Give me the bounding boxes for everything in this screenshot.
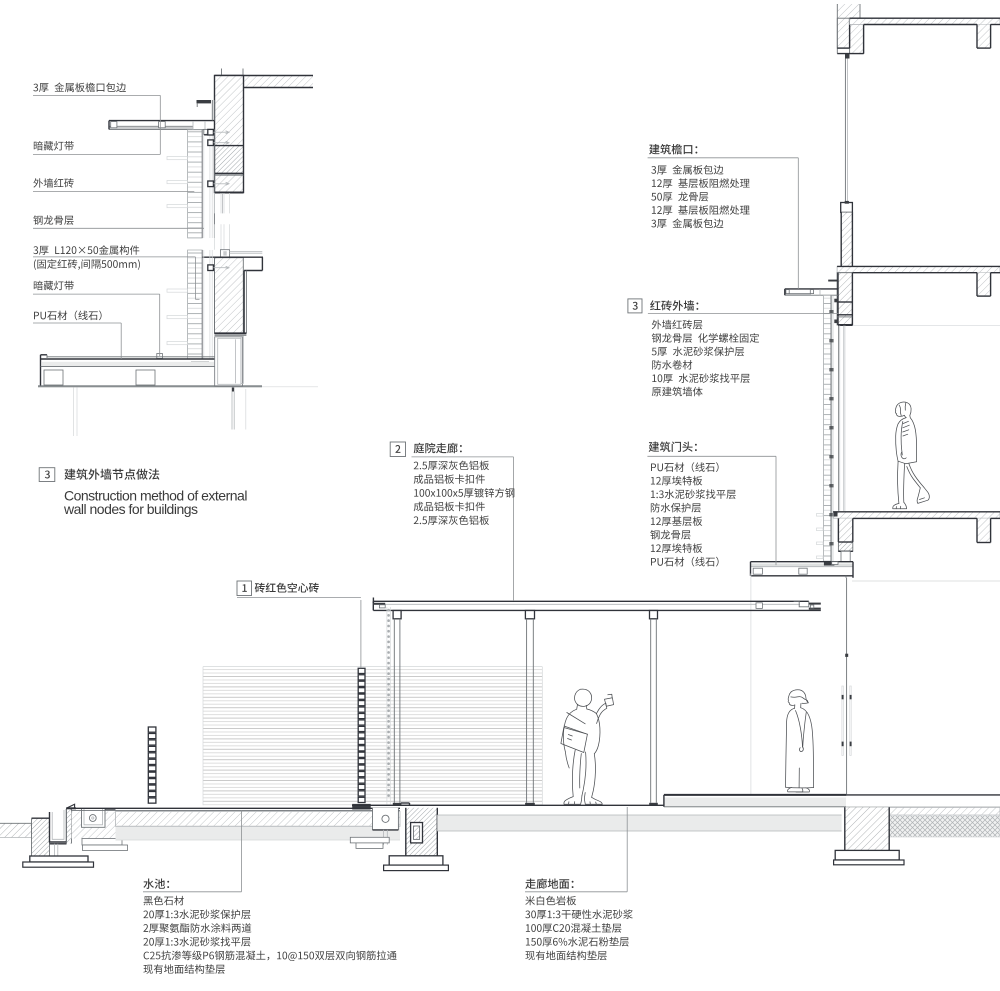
svg-text:wall nodes for buildings: wall nodes for buildings [63, 501, 198, 517]
